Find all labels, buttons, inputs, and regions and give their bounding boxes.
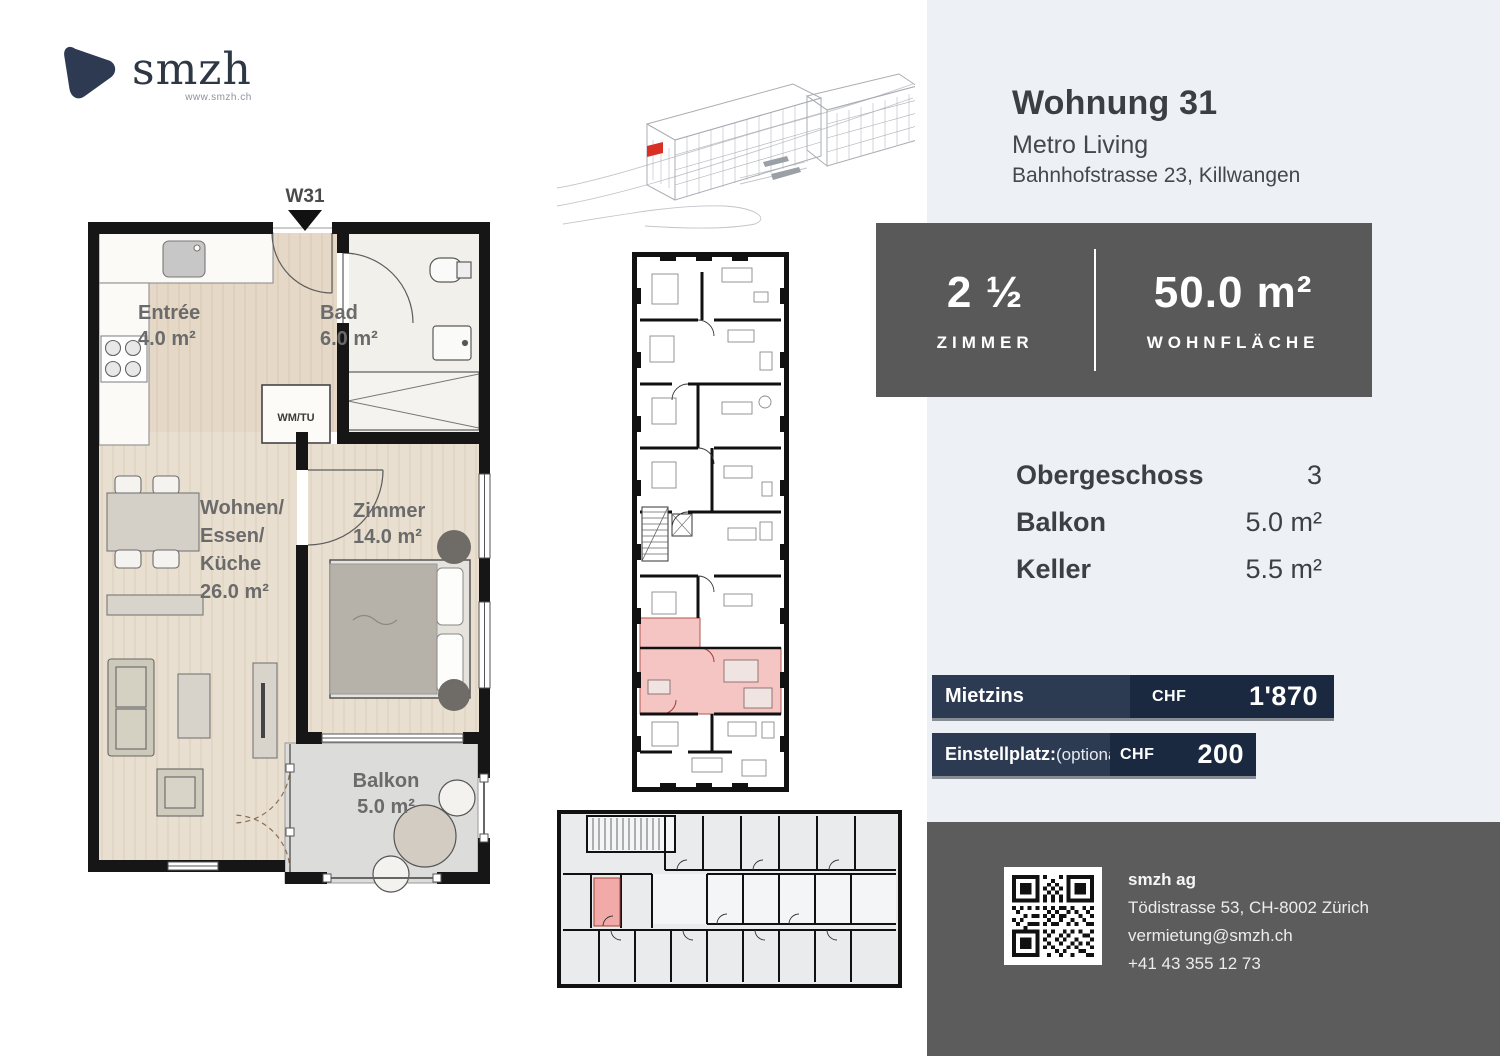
smzh-logo-icon bbox=[62, 42, 118, 104]
room-label-entree: Entrée 4.0 m² bbox=[138, 300, 200, 352]
unit-marker-label: W31 bbox=[275, 186, 335, 208]
detail-row-keller: Keller 5.5 m² bbox=[1016, 554, 1322, 585]
page-title: Wohnung 31 bbox=[1012, 84, 1300, 123]
floor-overview-plan bbox=[632, 252, 789, 792]
logo-wordmark: smzh bbox=[132, 48, 252, 92]
rent-label: Mietzins bbox=[932, 675, 1130, 718]
room-label-bad: Bad 6.0 m² bbox=[320, 300, 378, 352]
basement-plan bbox=[557, 810, 902, 988]
rooms-label: ZIMMER bbox=[937, 333, 1034, 353]
building-left bbox=[647, 84, 821, 200]
rent-amount-section: CHF 1'870 bbox=[1130, 675, 1334, 718]
rooms-value: 2 ½ bbox=[947, 268, 1023, 318]
company-email: vermietung@smzh.ch bbox=[1128, 922, 1369, 950]
highlighted-unit-marker bbox=[647, 142, 663, 157]
stats-divider bbox=[1094, 249, 1096, 371]
company-phone: +41 43 355 12 73 bbox=[1128, 950, 1369, 978]
room-label-wohnen: Wohnen/ Essen/ Küche 26.0 m² bbox=[200, 494, 284, 606]
parking-amount: 200 bbox=[1197, 739, 1244, 770]
detail-row-balkon: Balkon 5.0 m² bbox=[1016, 507, 1322, 538]
stool bbox=[438, 679, 470, 711]
qr-code-graphic bbox=[1012, 875, 1094, 957]
flyer-page: smzh www.smzh.ch bbox=[0, 0, 1500, 1056]
stat-area: 50.0 m² WOHNFLÄCHE bbox=[1094, 223, 1372, 397]
stats-card: 2 ½ ZIMMER 50.0 m² WOHNFLÄCHE bbox=[876, 223, 1372, 397]
room-label-zimmer: Zimmer 14.0 m² bbox=[353, 498, 425, 550]
footer: smzh ag Tödistrasse 53, CH-8002 Zürich v… bbox=[927, 822, 1500, 1056]
basement-stair bbox=[587, 816, 675, 852]
sideboard bbox=[107, 595, 203, 615]
parking-bar: Einstellplatz:(optional) CHF 200 bbox=[932, 733, 1256, 776]
stool bbox=[437, 530, 471, 564]
project-name: Metro Living bbox=[1012, 131, 1300, 160]
contact-block: smzh ag Tödistrasse 53, CH-8002 Zürich v… bbox=[1128, 866, 1369, 978]
detail-row-obergeschoss: Obergeschoss 3 bbox=[1016, 460, 1322, 491]
unit-marker-triangle-icon bbox=[288, 210, 322, 231]
detail-list: Obergeschoss 3 Balkon 5.0 m² Keller 5.5 … bbox=[1016, 460, 1322, 601]
building-right bbox=[807, 74, 915, 166]
qr-code bbox=[1004, 867, 1102, 965]
parking-label: Einstellplatz: bbox=[945, 744, 1056, 765]
project-address: Bahnhofstrasse 23, Killwangen bbox=[1012, 164, 1300, 188]
company-name: smzh ag bbox=[1128, 866, 1369, 894]
apartment-floorplan: W31 Entrée 4.0 m² Bad 6.0 m² Wohnen/ Ess… bbox=[85, 188, 495, 900]
rent-bar: Mietzins CHF 1'870 bbox=[932, 675, 1334, 718]
washer-dryer-label: WM/TU bbox=[264, 412, 328, 424]
dining-table bbox=[107, 493, 199, 551]
site-illustration bbox=[555, 28, 915, 230]
room-label-balkon: Balkon 5.0 m² bbox=[331, 768, 441, 820]
logo-website: www.smzh.ch bbox=[185, 92, 252, 103]
stat-rooms: 2 ½ ZIMMER bbox=[876, 223, 1094, 397]
parking-currency: CHF bbox=[1120, 746, 1154, 764]
title-block: Wohnung 31 Metro Living Bahnhofstrasse 2… bbox=[1012, 84, 1300, 188]
company-address: Tödistrasse 53, CH-8002 Zürich bbox=[1128, 894, 1369, 922]
parking-note: (optional) bbox=[1056, 745, 1110, 765]
coffee-table bbox=[178, 674, 210, 738]
rent-currency: CHF bbox=[1152, 688, 1186, 706]
rent-amount: 1'870 bbox=[1249, 681, 1318, 712]
parking-amount-section: CHF 200 bbox=[1110, 733, 1256, 776]
highlighted-keller-cell bbox=[594, 878, 620, 926]
smzh-logo: smzh www.smzh.ch bbox=[62, 42, 252, 104]
parking-label-section: Einstellplatz:(optional) bbox=[932, 733, 1110, 776]
area-label: WOHNFLÄCHE bbox=[1147, 333, 1320, 353]
shower bbox=[348, 372, 479, 430]
area-value: 50.0 m² bbox=[1154, 268, 1313, 318]
